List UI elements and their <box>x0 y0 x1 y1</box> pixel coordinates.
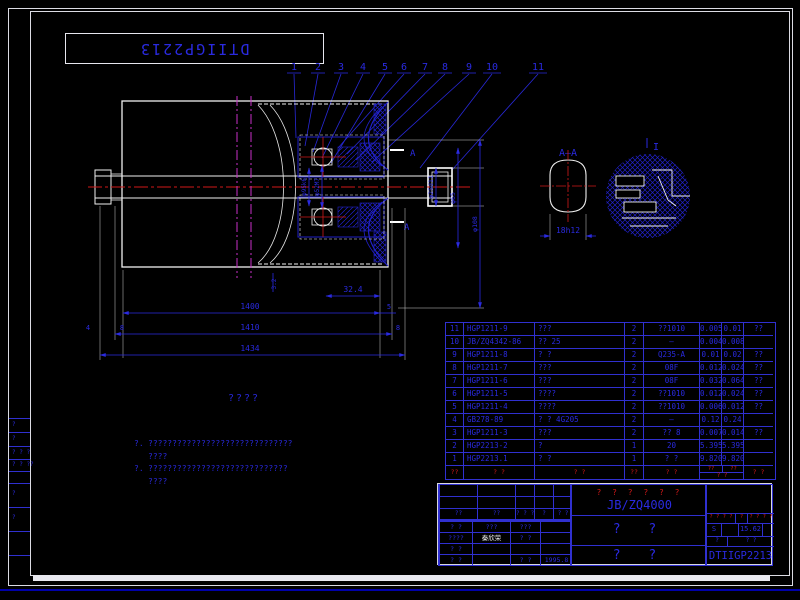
bom-cell-code: HGP1211-4 <box>463 401 534 414</box>
bom-cell-name: ??? <box>534 362 624 375</box>
bom-cell-w1: 0.01 <box>699 349 721 362</box>
bom-cell-mat: — <box>643 414 699 427</box>
bom-cell-rk: ?? <box>743 323 773 336</box>
bom-cell-code: HGP1211-8 <box>463 349 534 362</box>
edge-mark: ? ? ?? <box>12 461 34 468</box>
edge-divider <box>9 471 30 472</box>
signature-cell: ??? <box>510 522 540 533</box>
bom-cell-code: HGP1211-5 <box>463 388 534 401</box>
signature-cell <box>540 533 572 544</box>
revision-row <box>439 485 572 497</box>
svg-text:7: 7 <box>422 62 428 73</box>
product-title-cell: ? ? ? ? ? ? JB/ZQ4000 <box>572 485 707 516</box>
svg-text:φ52M7: φ52M7 <box>314 178 321 196</box>
bom-cell-rk <box>743 336 773 349</box>
revision-cell: ?? <box>439 509 477 520</box>
bom-cell-qty: 2 <box>624 336 643 349</box>
bom-cell-name: ? ? <box>534 453 624 466</box>
bom-cell-w1: 0.005 <box>699 323 721 336</box>
bom-row: 2HGP2213-2?1205.3955.395 <box>446 440 775 453</box>
scale-empty <box>721 523 738 536</box>
bom-cell-no: 3 <box>446 427 463 440</box>
bom-row: 9HGP1211-8? ?2Q235-A0.010.02?? <box>446 349 775 362</box>
bom-cell-rk <box>743 440 773 453</box>
bom-cell-no: 9 <box>446 349 463 362</box>
bom-row: 3HGP1211-3???2?? 80.0070.014?? <box>446 427 775 440</box>
revision-row <box>439 497 572 509</box>
bom-cell-no: 7 <box>446 375 463 388</box>
bom-cell-no: 4 <box>446 414 463 427</box>
main-view: A A <box>88 96 470 278</box>
bom-cell-no: 6 <box>446 388 463 401</box>
bom-cell-qty: 2 <box>624 401 643 414</box>
svg-text:18h12: 18h12 <box>556 226 580 235</box>
bom-cell-code: HGP1211-7 <box>463 362 534 375</box>
bom-cell-mat: — <box>643 336 699 349</box>
attr-text-3: ? ? ? ? <box>747 513 774 523</box>
svg-text:5: 5 <box>382 62 388 73</box>
svg-text:3: 3 <box>338 62 344 73</box>
signature-cell: ? ? <box>510 555 540 566</box>
bom-row: 6HGP1211-5????2??10100.0120.024?? <box>446 388 775 401</box>
note-1-line1: ?????????????????????????????? <box>148 439 293 448</box>
revision-cell <box>439 485 477 497</box>
revision-cell: ? ? <box>553 509 572 520</box>
scale-mark: S <box>707 523 721 536</box>
bom-cell-w2: 0.064 <box>721 375 743 388</box>
svg-text:1410: 1410 <box>240 323 259 332</box>
bom-cell-mat: 08F <box>643 375 699 388</box>
bom-cell-mat: ?? 8 <box>643 427 699 440</box>
bom-cell-no: 5 <box>446 401 463 414</box>
svg-text:2: 2 <box>315 62 321 73</box>
bom-cell-w1: 0.007 <box>699 427 721 440</box>
svg-text:φ108: φ108 <box>471 216 479 232</box>
svg-text:4: 4 <box>86 324 90 332</box>
signature-cell: ? ? <box>439 544 472 555</box>
svg-text:1: 1 <box>291 62 297 73</box>
revision-table: ????? ? ??? ? <box>438 484 571 521</box>
bom-cell-qty: 2 <box>624 375 643 388</box>
bom-cell-name: ? ? <box>534 349 624 362</box>
bom-cell-w2: 5.395 <box>721 440 743 453</box>
revision-cell: ? <box>534 509 553 520</box>
note-1-number: ?. <box>134 439 144 448</box>
edge-mark: ? <box>12 490 16 497</box>
bom-cell-w1: 0.012 <box>699 388 721 401</box>
bom-row: 5HGP1211-4????2??10100.0060.012?? <box>446 401 775 414</box>
bom-cell-qty: 2 <box>624 388 643 401</box>
bom-header-qty: ?? <box>624 466 643 479</box>
bom-cell-name: ? <box>534 440 624 453</box>
bom-cell-rk: ?? <box>743 427 773 440</box>
svg-text:φ25d11: φ25d11 <box>427 175 435 199</box>
bom-cell-w2: 0.02 <box>721 349 743 362</box>
bom-cell-w2: 0.01 <box>721 323 743 336</box>
svg-text:32.4: 32.4 <box>343 285 362 294</box>
signature-cell: 秦欣荣 <box>472 533 510 544</box>
svg-text:8: 8 <box>442 62 448 73</box>
bom-cell-code: HGP2213.1 <box>463 453 534 466</box>
bom-cell-w1: 5.395 <box>699 440 721 453</box>
bom-cell-rk <box>743 453 773 466</box>
bom-row: 4GB278-89? ? 4G2052—0.120.24 <box>446 414 775 427</box>
bom-cell-rk: ?? <box>743 375 773 388</box>
weight-value: 15.62 <box>738 523 762 536</box>
edge-divider <box>9 483 30 484</box>
revision-cell <box>515 497 534 509</box>
bom-cell-w1: 0.004 <box>699 336 721 349</box>
bom-cell-w2: 0.24 <box>721 414 743 427</box>
detail-view-i: I <box>606 138 690 238</box>
bom-cell-name: ? ? 4G205 <box>534 414 624 427</box>
bom-cell-mat: 08F <box>643 362 699 375</box>
sheet-cell-1: ? <box>707 536 727 546</box>
bom-cell-rk <box>743 414 773 427</box>
bom-cell-qty: 2 <box>624 427 643 440</box>
title-middle-section: ? ? ? ? ? ? JB/ZQ4000 ? ? ? ? <box>571 484 706 566</box>
signature-cell <box>472 544 510 555</box>
signature-cell: ???? <box>439 533 472 544</box>
revision-cell <box>534 497 553 509</box>
standard-number: JB/ZQ4000 <box>572 498 707 512</box>
bom-row: 11HGP1211-9???2??10100.0050.01?? <box>446 323 775 336</box>
bom-header-weight: ?? ?? ? ? <box>699 466 743 479</box>
sheet-cell-2: ? ? <box>727 536 774 546</box>
svg-text:I: I <box>653 142 659 153</box>
svg-text:φ65: φ65 <box>449 192 457 204</box>
svg-text:10: 10 <box>486 62 498 73</box>
bom-cell-w1: 0.032 <box>699 375 721 388</box>
bom-cell-no: 11 <box>446 323 463 336</box>
bom-cell-mat: ??1010 <box>643 323 699 336</box>
bom-table: 11HGP1211-9???2??10100.0050.01??10JB/ZQ4… <box>445 322 776 480</box>
drawing-code: DTIIGP2213 <box>707 546 774 567</box>
bom-cell-name: ???? <box>534 401 624 414</box>
bom-cell-w2: 0.024 <box>721 388 743 401</box>
signature-cell <box>540 544 572 555</box>
revision-cell <box>534 485 553 497</box>
bom-row: 1HGP2213.1? ?1? ?9.8209.820 <box>446 453 775 466</box>
edge-mark: ? <box>12 435 16 442</box>
signature-cell: ??? <box>472 522 510 533</box>
edge-divider <box>9 555 30 556</box>
svg-text:3.2: 3.2 <box>271 278 278 289</box>
signature-cell <box>472 555 510 566</box>
attr-text-2: ? <box>735 513 747 523</box>
notes-title: ???? <box>228 393 260 404</box>
signature-row: ? ?? ?1995.8 <box>439 555 570 566</box>
signature-row: ????秦欣荣? ? <box>439 533 570 544</box>
svg-text:φ95k6: φ95k6 <box>301 178 308 196</box>
svg-text:5: 5 <box>387 303 391 311</box>
bom-cell-mat: ??1010 <box>643 401 699 414</box>
bom-cell-w1: 0.12 <box>699 414 721 427</box>
bom-cell-w2: 0.024 <box>721 362 743 375</box>
svg-text:4: 4 <box>360 62 366 73</box>
note-2-line1: ????????????????????????????? <box>148 464 288 473</box>
bom-cell-qty: 1 <box>624 440 643 453</box>
bom-cell-name: ?? 25 <box>534 336 624 349</box>
cad-canvas: DTIIGP2213 <box>0 0 800 600</box>
bom-cell-code: GB278-89 <box>463 414 534 427</box>
bom-cell-qty: 2 <box>624 349 643 362</box>
title-mid-cell-2: ? ? <box>572 545 707 567</box>
bom-cell-no: 10 <box>446 336 463 349</box>
bom-row: 10JB/ZQ4342-86?? 252—0.0040.008 <box>446 336 775 349</box>
bom-header-code: ? ? <box>463 466 534 479</box>
revision-row: ????? ? ??? ? <box>439 509 572 520</box>
bom-cell-w1: 0.006 <box>699 401 721 414</box>
bom-cell-w2: 0.014 <box>721 427 743 440</box>
bom-header-name: ? ? <box>534 466 624 479</box>
signature-cell: ? ? <box>510 533 540 544</box>
bom-cell-w2: 0.012 <box>721 401 743 414</box>
bom-cell-w2: 0.008 <box>721 336 743 349</box>
bom-cell-qty: 2 <box>624 323 643 336</box>
revision-cell: ?? <box>477 509 515 520</box>
bom-cell-mat: Q235-A <box>643 349 699 362</box>
signature-cell <box>510 544 540 555</box>
bom-cell-mat: ??1010 <box>643 388 699 401</box>
signature-row: ? ? <box>439 544 570 555</box>
title-right-section: ? ? ? ? ? ? ? ? ? S 15.62 ? ? ? DTIIGP22… <box>706 484 773 566</box>
signature-cell: 1995.8 <box>540 555 572 566</box>
edge-divider <box>9 459 30 460</box>
bom-cell-qty: 2 <box>624 362 643 375</box>
bom-cell-rk: ?? <box>743 362 773 375</box>
callout-leaders <box>287 73 547 170</box>
edge-mark: ? ? ? <box>12 449 30 456</box>
revision-cell <box>439 497 477 509</box>
bom-cell-w1: 0.012 <box>699 362 721 375</box>
bom-cell-name: ??? <box>534 323 624 336</box>
svg-text:1400: 1400 <box>240 302 259 311</box>
revision-cell: ? ? ? <box>515 509 534 520</box>
scale-weight-row: S 15.62 <box>707 523 774 537</box>
bom-cell-rk: ?? <box>743 401 773 414</box>
edge-divider <box>9 446 30 447</box>
bom-row: 8HGP1211-7???208F0.0120.024?? <box>446 362 775 375</box>
svg-text:A: A <box>410 149 416 159</box>
bom-cell-rk: ?? <box>743 349 773 362</box>
note-2-number: ?. <box>134 464 144 473</box>
bom-cell-code: HGP1211-6 <box>463 375 534 388</box>
bom-cell-mat: ? ? <box>643 453 699 466</box>
signature-cell <box>540 522 572 533</box>
revision-cell <box>477 497 515 509</box>
edge-mark: ? <box>12 421 16 428</box>
bom-cell-code: HGP1211-9 <box>463 323 534 336</box>
svg-text:9: 9 <box>466 62 472 73</box>
bom-cell-code: JB/ZQ4342-86 <box>463 336 534 349</box>
title-mid-cell-1: ? ? <box>572 515 707 546</box>
bom-cell-no: 1 <box>446 453 463 466</box>
edge-divider <box>9 507 30 508</box>
title-block: ????? ? ??? ? ? ???????????秦欣荣? ?? ?? ??… <box>437 483 772 565</box>
svg-text:11: 11 <box>532 62 544 73</box>
bom-cell-no: 8 <box>446 362 463 375</box>
svg-text:1434: 1434 <box>240 344 259 353</box>
signature-table: ? ???????????秦欣荣? ?? ?? ?? ?1995.8 <box>438 521 571 566</box>
revision-cell <box>553 485 572 497</box>
section-view-aa: A—A 18h12 <box>540 148 596 240</box>
bom-cell-name: ??? <box>534 375 624 388</box>
edge-mark: ? <box>12 514 16 521</box>
bom-header-weight-label: ? ? <box>700 472 743 478</box>
signature-cell: ? ? <box>439 522 472 533</box>
bom-header-row: ?? ? ? ? ? ?? ? ? ?? ?? ? ? ? ? <box>446 466 775 479</box>
bom-cell-no: 2 <box>446 440 463 453</box>
revision-cell <box>553 497 572 509</box>
bom-cell-code: HGP1211-3 <box>463 427 534 440</box>
bom-header-remarks: ? ? <box>743 466 773 479</box>
bom-cell-w1: 9.820 <box>699 453 721 466</box>
bom-cell-w2: 9.820 <box>721 453 743 466</box>
bom-cell-qty: 2 <box>624 414 643 427</box>
revision-cell <box>477 485 515 497</box>
weight-empty <box>762 523 774 536</box>
svg-text:6: 6 <box>401 62 407 73</box>
signature-row: ? ??????? <box>439 522 570 533</box>
note-2-line2: ???? <box>148 477 167 486</box>
bom-cell-mat: 20 <box>643 440 699 453</box>
callout-numbers: 1 2 3 4 5 6 7 8 9 10 11 <box>291 62 544 73</box>
edge-divider <box>9 432 30 433</box>
signature-cell: ? ? <box>439 555 472 566</box>
bom-header-material: ? ? <box>643 466 699 479</box>
bom-cell-name: ???? <box>534 388 624 401</box>
bom-cell-code: HGP2213-2 <box>463 440 534 453</box>
svg-text:8: 8 <box>120 324 124 332</box>
attr-text-1: ? ? ? ? <box>707 513 735 523</box>
edge-divider <box>9 531 30 532</box>
bom-rows: 11HGP1211-9???2??10100.0050.01??10JB/ZQ4… <box>446 323 775 466</box>
bom-cell-name: ??? <box>534 427 624 440</box>
svg-text:8: 8 <box>396 324 400 332</box>
product-name-text: ? ? ? ? ? ? <box>572 488 707 497</box>
bom-cell-rk: ?? <box>743 388 773 401</box>
edge-divider <box>9 418 30 419</box>
dimensions <box>100 140 484 360</box>
bom-cell-qty: 1 <box>624 453 643 466</box>
revision-cell <box>515 485 534 497</box>
bom-header-no: ?? <box>446 466 463 479</box>
bom-row: 7HGP1211-6???208F0.0320.064?? <box>446 375 775 388</box>
title-empty-cell <box>707 485 774 514</box>
note-1-line2: ???? <box>148 452 167 461</box>
